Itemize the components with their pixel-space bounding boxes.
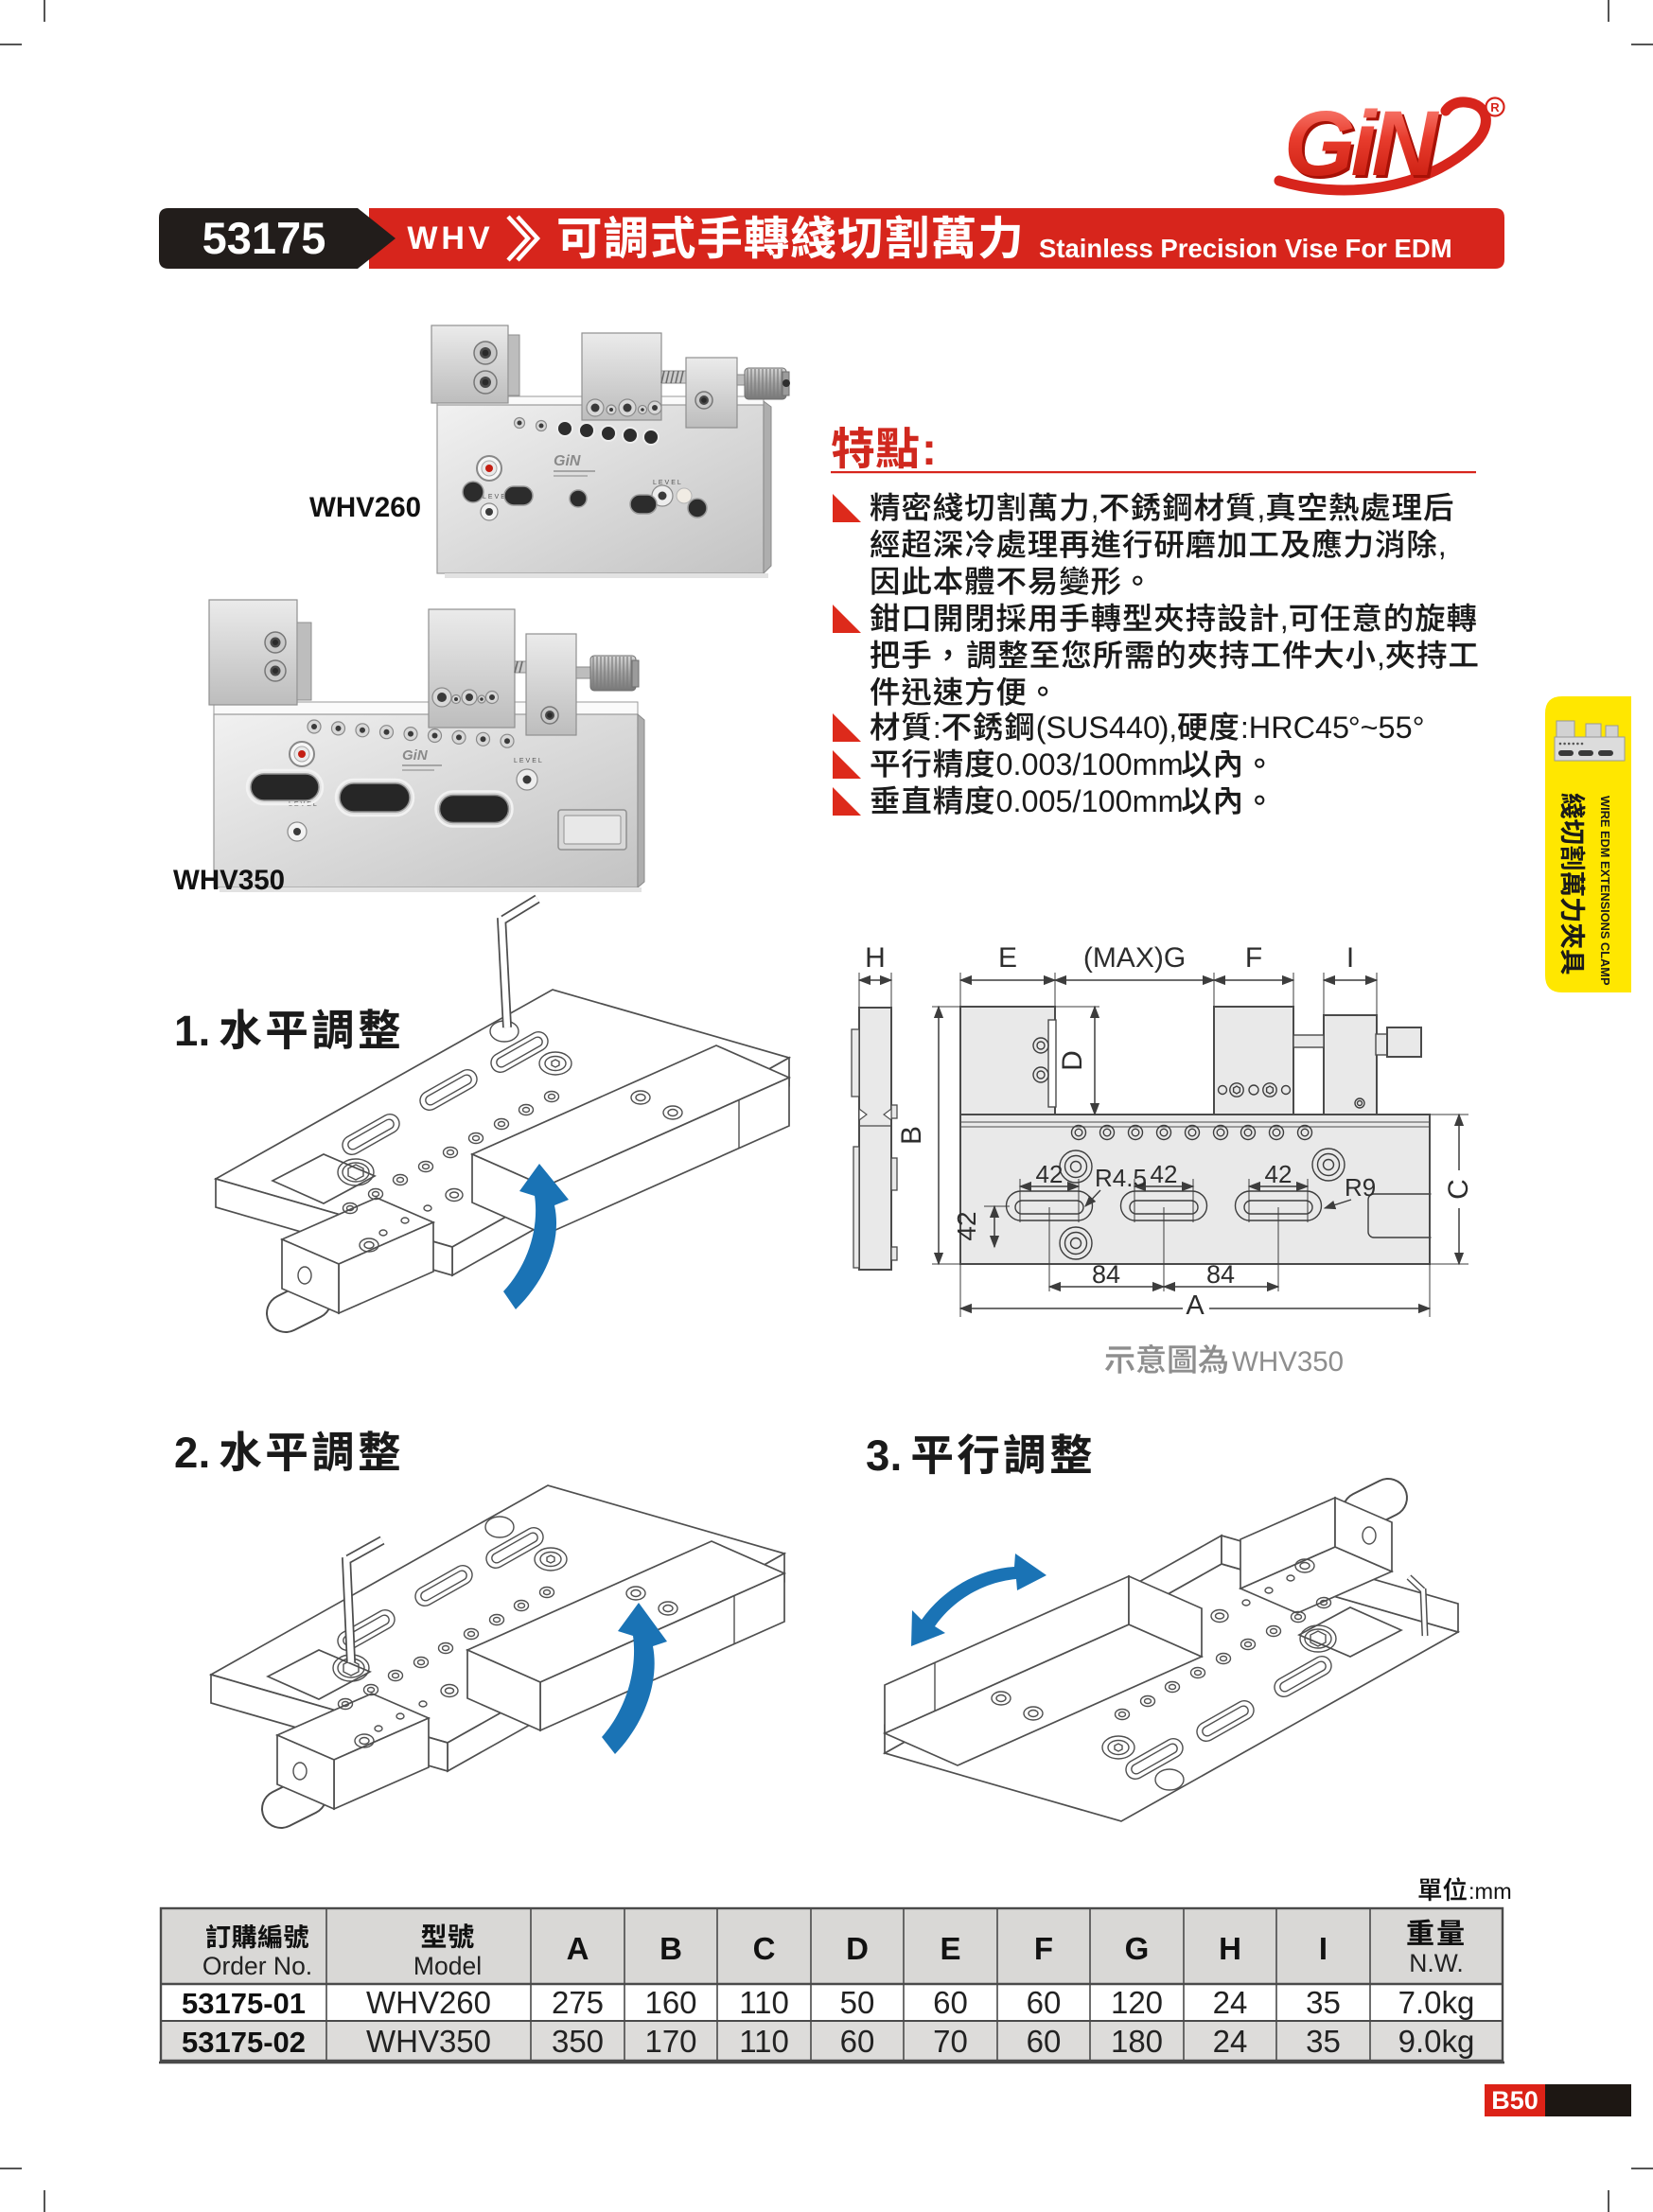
- svg-text:A: A: [567, 1931, 589, 1966]
- svg-text:Model: Model: [413, 1952, 482, 1980]
- svg-text:I: I: [1319, 1931, 1328, 1966]
- svg-text:N.W.: N.W.: [1409, 1949, 1463, 1977]
- svg-text:0.003/100mm: 0.003/100mm: [996, 747, 1184, 781]
- svg-text:WIRE EDM EXTENSIONS CLAMP: WIRE EDM EXTENSIONS CLAMP: [1598, 796, 1612, 986]
- svg-text:,: ,: [1377, 639, 1385, 673]
- svg-text:GiN: GiN: [402, 747, 429, 764]
- svg-text:60: 60: [933, 1985, 968, 2020]
- svg-text:B50: B50: [1491, 2086, 1539, 2115]
- svg-text:24: 24: [1213, 2024, 1248, 2059]
- svg-text:1: 1: [174, 1007, 198, 1055]
- svg-text:,: ,: [1091, 491, 1099, 525]
- svg-text:WHV260: WHV260: [366, 1985, 491, 2020]
- svg-text:E: E: [940, 1931, 960, 1966]
- svg-text:LEVEL: LEVEL: [653, 480, 683, 486]
- svg-text:42: 42: [1036, 1160, 1064, 1188]
- svg-text:D: D: [1057, 1050, 1088, 1071]
- svg-text:,: ,: [1169, 711, 1177, 745]
- svg-text:WHV350: WHV350: [1232, 1346, 1344, 1378]
- svg-text:53175-01: 53175-01: [182, 1987, 306, 2020]
- svg-text:110: 110: [739, 1985, 789, 2020]
- svg-text:E: E: [998, 942, 1017, 974]
- svg-text:42: 42: [1265, 1160, 1293, 1188]
- svg-text:53175: 53175: [202, 213, 326, 263]
- svg-text:.: .: [890, 1431, 903, 1480]
- svg-text:LEVEL: LEVEL: [514, 758, 544, 764]
- svg-text:F: F: [1034, 1931, 1053, 1966]
- svg-text:WHV350: WHV350: [173, 865, 285, 896]
- svg-text:35: 35: [1306, 2024, 1341, 2059]
- svg-text::: :: [1240, 711, 1249, 745]
- svg-text:180: 180: [1111, 2024, 1163, 2059]
- svg-text:R4.5: R4.5: [1095, 1164, 1147, 1192]
- svg-text:C: C: [1443, 1179, 1474, 1200]
- svg-text:H: H: [865, 942, 886, 974]
- svg-text:R: R: [1490, 100, 1500, 114]
- svg-text:(MAX)G: (MAX)G: [1083, 942, 1186, 974]
- svg-text:,: ,: [1280, 602, 1289, 636]
- svg-text:HRC45: HRC45: [1249, 711, 1349, 745]
- svg-text:84: 84: [1206, 1260, 1235, 1289]
- svg-text:.: .: [199, 1007, 211, 1055]
- svg-text:3: 3: [866, 1431, 889, 1480]
- svg-text:,: ,: [1438, 528, 1447, 562]
- svg-text:60: 60: [840, 2024, 875, 2059]
- svg-text:160: 160: [644, 1985, 696, 2020]
- svg-text:84: 84: [1092, 1260, 1120, 1289]
- svg-text:WHV: WHV: [407, 220, 493, 256]
- svg-text:GiN: GiN: [1284, 92, 1439, 195]
- svg-text:(: (: [1036, 711, 1046, 745]
- svg-text:WHV260: WHV260: [309, 492, 421, 523]
- svg-text:35: 35: [1306, 1985, 1341, 2020]
- svg-text:Order No.: Order No.: [202, 1952, 312, 1980]
- svg-text:42: 42: [1151, 1160, 1178, 1188]
- svg-text::: :: [933, 711, 941, 745]
- svg-text:D: D: [846, 1931, 869, 1966]
- svg-text:275: 275: [552, 1985, 604, 2020]
- svg-text:F: F: [1245, 942, 1262, 974]
- svg-text:C: C: [753, 1931, 776, 1966]
- svg-text:350: 350: [552, 2024, 604, 2059]
- svg-text:60: 60: [1027, 2024, 1062, 2059]
- svg-text:170: 170: [644, 2024, 696, 2059]
- svg-text:GiN: GiN: [554, 453, 581, 469]
- svg-text:,: ,: [1257, 491, 1265, 525]
- svg-text:24: 24: [1213, 1985, 1248, 2020]
- svg-text:A: A: [1186, 1290, 1205, 1321]
- svg-text:60: 60: [1027, 1985, 1062, 2020]
- svg-text:B: B: [896, 1126, 927, 1145]
- svg-text:B: B: [659, 1931, 682, 1966]
- svg-text:7.0kg: 7.0kg: [1398, 1985, 1475, 2020]
- svg-text:9.0kg: 9.0kg: [1398, 2024, 1475, 2059]
- svg-text::mm: :mm: [1468, 1879, 1512, 1904]
- svg-text:.: .: [199, 1429, 211, 1477]
- svg-text:42: 42: [952, 1211, 981, 1240]
- svg-text:53175-02: 53175-02: [182, 2026, 306, 2059]
- svg-text:2: 2: [174, 1429, 198, 1477]
- svg-text:R9: R9: [1345, 1173, 1376, 1202]
- svg-text:): ): [1159, 711, 1169, 745]
- svg-text:G: G: [1125, 1931, 1150, 1966]
- svg-text:°~55°: °~55°: [1348, 711, 1425, 745]
- svg-text:Stainless Precision Vise For E: Stainless Precision Vise For EDM: [1039, 234, 1452, 263]
- svg-text:H: H: [1219, 1931, 1241, 1966]
- svg-text:I: I: [1346, 942, 1354, 974]
- svg-text:SUS440: SUS440: [1046, 711, 1160, 745]
- svg-text:50: 50: [840, 1985, 875, 2020]
- svg-text:0.005/100mm: 0.005/100mm: [996, 784, 1184, 818]
- svg-text:WHV350: WHV350: [366, 2024, 491, 2059]
- svg-text::: :: [922, 425, 937, 475]
- svg-text:120: 120: [1111, 1985, 1163, 2020]
- svg-text:110: 110: [739, 2024, 789, 2059]
- svg-text:70: 70: [933, 2024, 968, 2059]
